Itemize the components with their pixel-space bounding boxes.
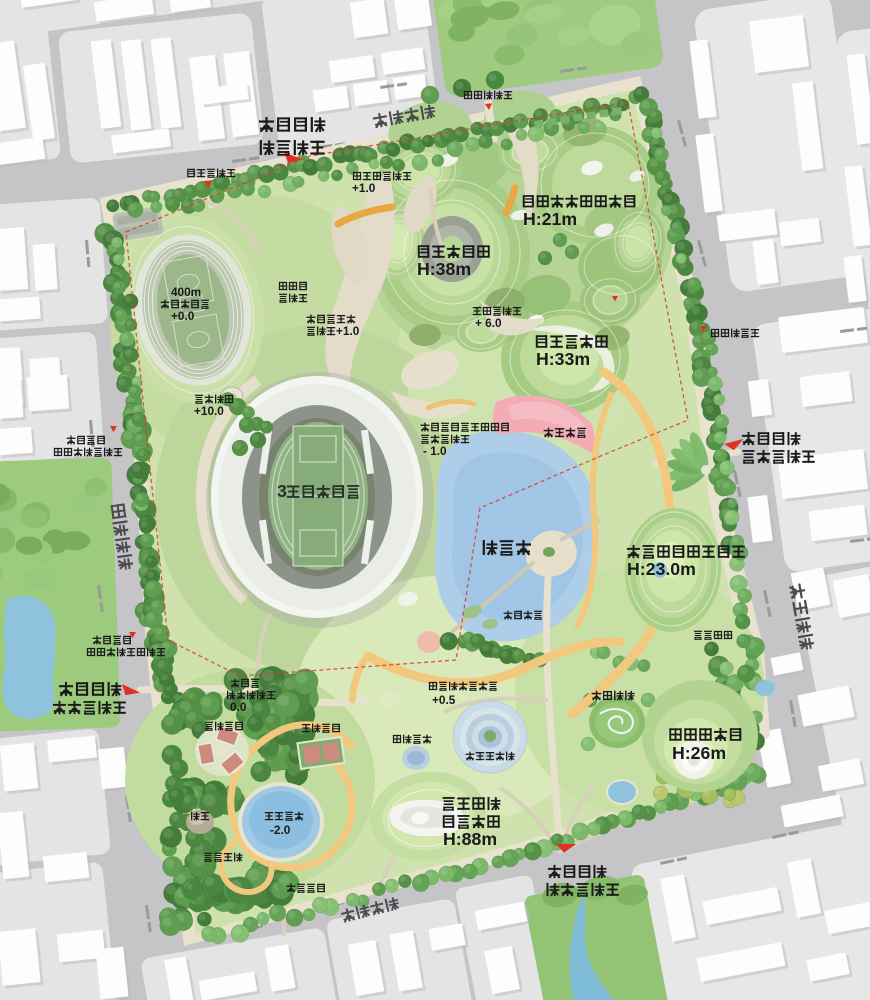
svg-text:H:33m: H:33m (536, 349, 590, 369)
svg-text:H:88m: H:88m (443, 829, 497, 849)
svg-text:400m: 400m (171, 285, 201, 299)
svg-text:+ 6.0: + 6.0 (475, 316, 502, 330)
svg-text:+10.0: +10.0 (194, 404, 224, 418)
svg-text:+1.0: +1.0 (336, 324, 360, 338)
svg-text:+1.0: +1.0 (352, 181, 376, 195)
svg-text:+0.5: +0.5 (432, 693, 456, 707)
svg-text:H:26m: H:26m (672, 743, 726, 763)
svg-text:H:38m: H:38m (417, 259, 471, 279)
svg-text:3: 3 (277, 481, 287, 501)
svg-text:0.0: 0.0 (230, 700, 247, 714)
svg-text:- 1.0: - 1.0 (423, 444, 447, 458)
svg-text:-2.0: -2.0 (270, 823, 291, 837)
svg-text:+0.0: +0.0 (171, 309, 195, 323)
svg-text:H:23.0m: H:23.0m (627, 559, 696, 579)
svg-text:H:21m: H:21m (523, 209, 577, 229)
